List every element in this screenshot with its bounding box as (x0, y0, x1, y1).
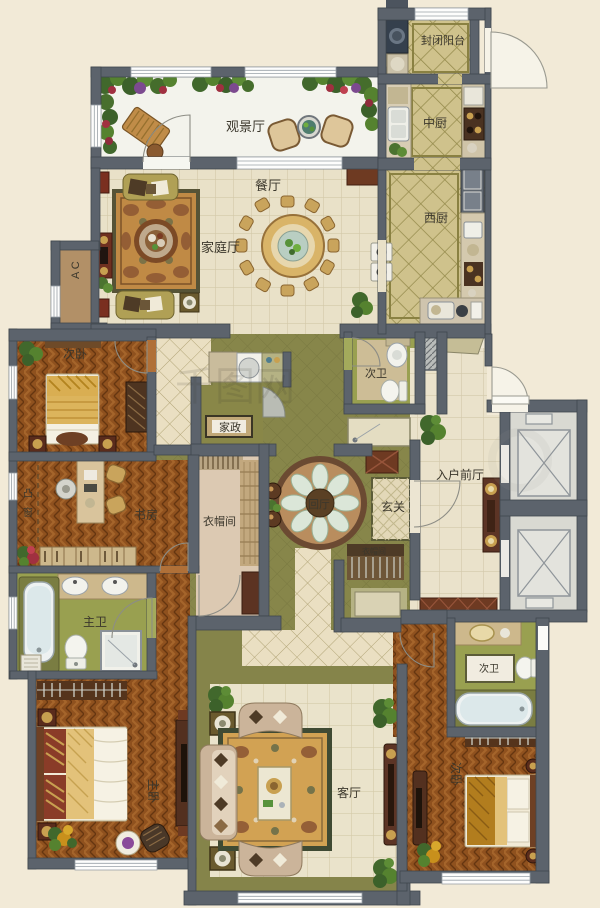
svg-text:主卧: 主卧 (146, 779, 160, 803)
svg-text:观景厅: 观景厅 (226, 119, 265, 134)
svg-text:衣帽间: 衣帽间 (203, 514, 236, 528)
svg-text:次卫: 次卫 (365, 366, 387, 380)
svg-text:家庭厅: 家庭厅 (201, 240, 240, 255)
svg-text:衣帽间: 衣帽间 (362, 546, 386, 556)
svg-text:玄关: 玄关 (381, 499, 405, 514)
svg-text:次卧: 次卧 (63, 347, 87, 361)
svg-text:次卫: 次卫 (479, 662, 499, 675)
svg-text:窗: 窗 (23, 506, 33, 519)
svg-text:封闭阳台: 封闭阳台 (421, 33, 465, 47)
svg-text:书房: 书房 (134, 507, 158, 522)
svg-text:客厅: 客厅 (337, 785, 361, 800)
svg-text:凸: 凸 (23, 488, 33, 500)
svg-text:家政: 家政 (219, 420, 241, 434)
svg-text:餐厅: 餐厅 (255, 178, 281, 193)
svg-text:中厨: 中厨 (423, 115, 447, 130)
svg-text:西厨: 西厨 (424, 211, 448, 225)
svg-text:入户前厅: 入户前厅 (436, 467, 484, 482)
svg-text:主卫: 主卫 (83, 615, 107, 629)
svg-text:回厅: 回厅 (308, 498, 330, 511)
svg-text:千图网: 千图网 (175, 365, 295, 409)
svg-text:A C: A C (70, 261, 82, 279)
svg-text:次卧: 次卧 (449, 762, 463, 786)
